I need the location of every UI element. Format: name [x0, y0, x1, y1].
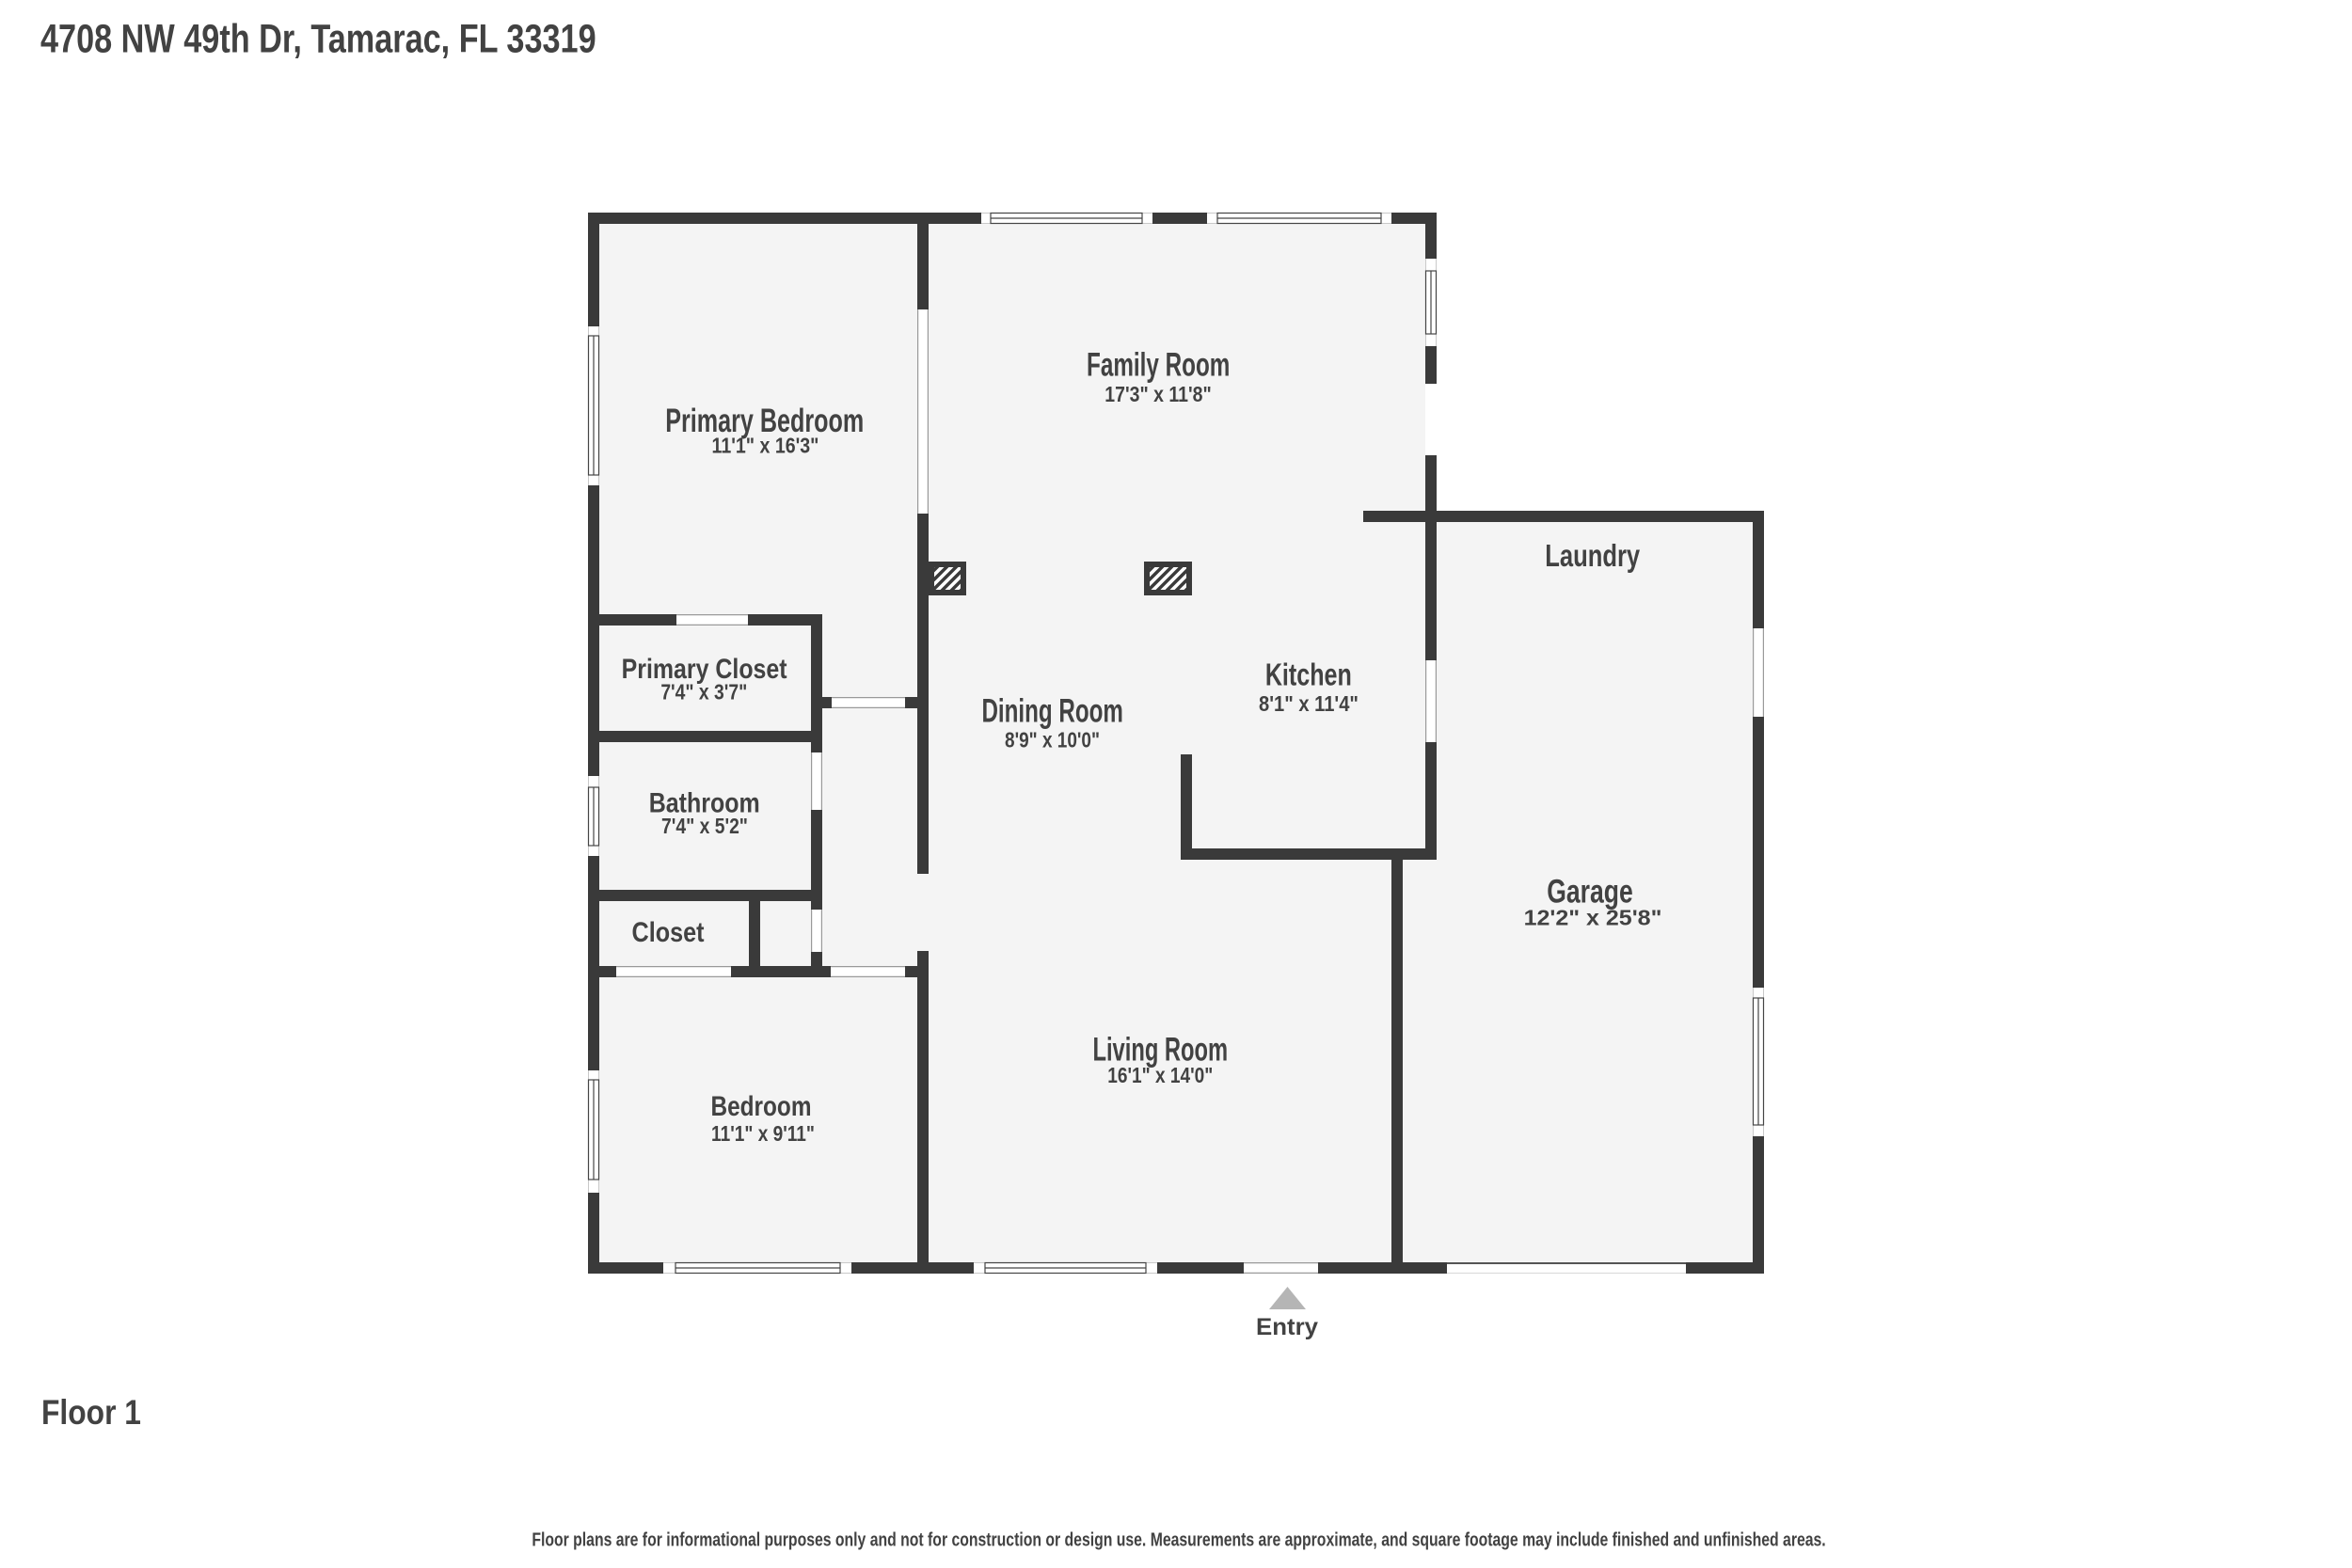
- svg-text:Floor plans are for informatio: Floor plans are for informational purpos…: [532, 1529, 1825, 1550]
- svg-text:Closet: Closet: [632, 916, 705, 948]
- svg-text:Living Room: Living Room: [1092, 1032, 1228, 1069]
- svg-text:7'4" x 3'7": 7'4" x 3'7": [660, 680, 747, 705]
- svg-text:17'3" x 11'8": 17'3" x 11'8": [1104, 383, 1211, 407]
- svg-text:7'4" x 5'2": 7'4" x 5'2": [661, 814, 748, 838]
- svg-text:Dining Room: Dining Room: [981, 693, 1122, 729]
- svg-text:11'1" x 9'11": 11'1" x 9'11": [711, 1122, 815, 1146]
- svg-text:Entry: Entry: [1256, 1314, 1318, 1340]
- svg-text:Garage: Garage: [1547, 873, 1632, 910]
- svg-text:Family Room: Family Room: [1087, 347, 1230, 383]
- svg-text:16'1" x 14'0": 16'1" x 14'0": [1107, 1064, 1213, 1087]
- svg-text:8'1" x 11'4": 8'1" x 11'4": [1259, 691, 1359, 717]
- svg-text:Laundry: Laundry: [1545, 539, 1640, 574]
- svg-text:8'9" x 10'0": 8'9" x 10'0": [1005, 729, 1100, 752]
- svg-text:4708 NW 49th Dr, Tamarac, FL 3: 4708 NW 49th Dr, Tamarac, FL 33319: [40, 17, 596, 62]
- svg-text:11'1" x 16'3": 11'1" x 16'3": [712, 434, 819, 458]
- svg-text:Floor 1: Floor 1: [41, 1394, 141, 1433]
- svg-text:Bedroom: Bedroom: [711, 1090, 812, 1122]
- svg-text:Kitchen: Kitchen: [1265, 657, 1352, 692]
- svg-text:12'2" x 25'8": 12'2" x 25'8": [1524, 906, 1662, 930]
